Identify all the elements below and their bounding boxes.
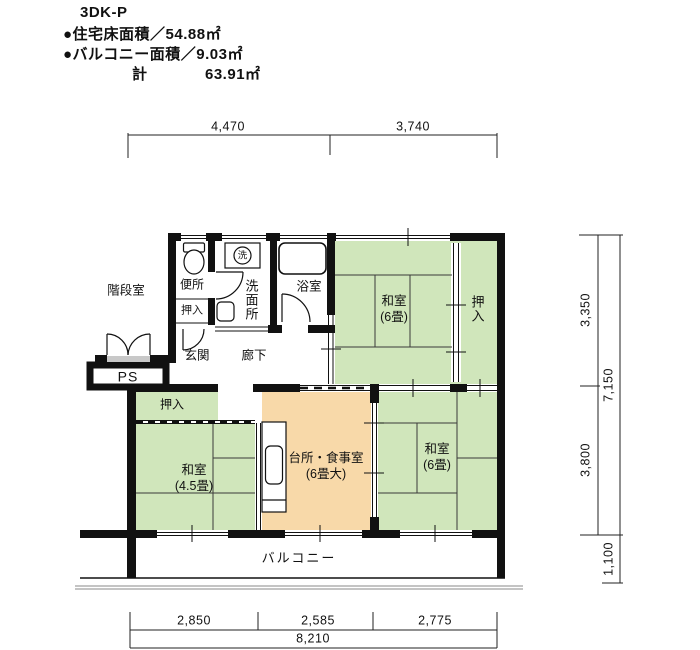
balcony-railing <box>75 578 523 589</box>
room-label-hall-closet: 押入 <box>181 304 203 319</box>
washing-machine-glyph: 洗 <box>238 249 248 264</box>
dim-right-balcony: 1,100 <box>602 542 617 576</box>
tatami-se-name: 和室 <box>423 441 451 457</box>
entrance-threshold <box>107 356 150 362</box>
kitchen-counter <box>262 422 286 512</box>
dim-top-left: 4,470 <box>211 120 245 135</box>
room-label-entrance: 玄関 <box>184 349 209 364</box>
room-label-balcony: バルコニー <box>262 551 337 566</box>
room-label-bathroom: 浴室 <box>296 280 321 295</box>
toilet-fixture <box>184 243 205 274</box>
balcony-area-line: ●バルコニー面積／9.03㎡ <box>63 43 243 64</box>
room-label-tatami-sw: 和室 (4.5畳) <box>175 462 213 494</box>
floor-plan-drawing <box>0 0 700 650</box>
dim-bottom-1: 2,850 <box>177 614 211 629</box>
tatami-ne-name: 和室 <box>380 293 408 309</box>
kitchen-name: 台所・食事室 <box>288 450 363 466</box>
floor-area-line: ●住宅床面積／54.88㎡ <box>63 23 221 44</box>
dim-right-lower: 3,800 <box>579 443 594 477</box>
room-label-closet-sw: 押入 <box>160 398 184 413</box>
dim-bottom-total: 8,210 <box>296 632 330 647</box>
dim-top-right: 3,740 <box>396 120 430 135</box>
total-label: 計 <box>132 63 148 84</box>
room-label-tatami-ne: 和室 (6畳) <box>380 293 408 325</box>
room-label-corridor: 廊下 <box>241 349 266 364</box>
tatami-se-size: (6畳) <box>423 457 451 473</box>
total-value: 63.91㎡ <box>205 63 261 84</box>
dim-right-total: 7,150 <box>602 368 617 402</box>
tatami-sw-size: (4.5畳) <box>175 478 213 494</box>
room-label-tatami-se: 和室 (6畳) <box>423 441 451 473</box>
floor-plan-page: 3DK-P ●住宅床面積／54.88㎡ ●バルコニー面積／9.03㎡ 計 63.… <box>0 0 700 650</box>
plan-title: 3DK-P <box>80 4 128 21</box>
kitchen-size: (6畳大) <box>288 466 363 482</box>
room-label-washroom: 洗面所 <box>244 279 259 321</box>
room-label-closet-ne: 押入 <box>470 295 485 323</box>
dim-right-upper: 3,350 <box>579 293 594 327</box>
room-label-stairwell: 階段室 <box>107 284 145 299</box>
washbasin <box>217 302 234 321</box>
room-label-pipe-space: PS <box>118 370 139 385</box>
room-label-toilet: 便所 <box>180 278 204 293</box>
dim-bottom-3: 2,775 <box>418 614 452 629</box>
tatami-ne-size: (6畳) <box>380 309 408 325</box>
room-label-kitchen: 台所・食事室 (6畳大) <box>288 450 363 482</box>
bathtub <box>279 243 326 274</box>
dim-bottom-2: 2,585 <box>301 614 335 629</box>
tatami-sw-name: 和室 <box>175 462 213 478</box>
